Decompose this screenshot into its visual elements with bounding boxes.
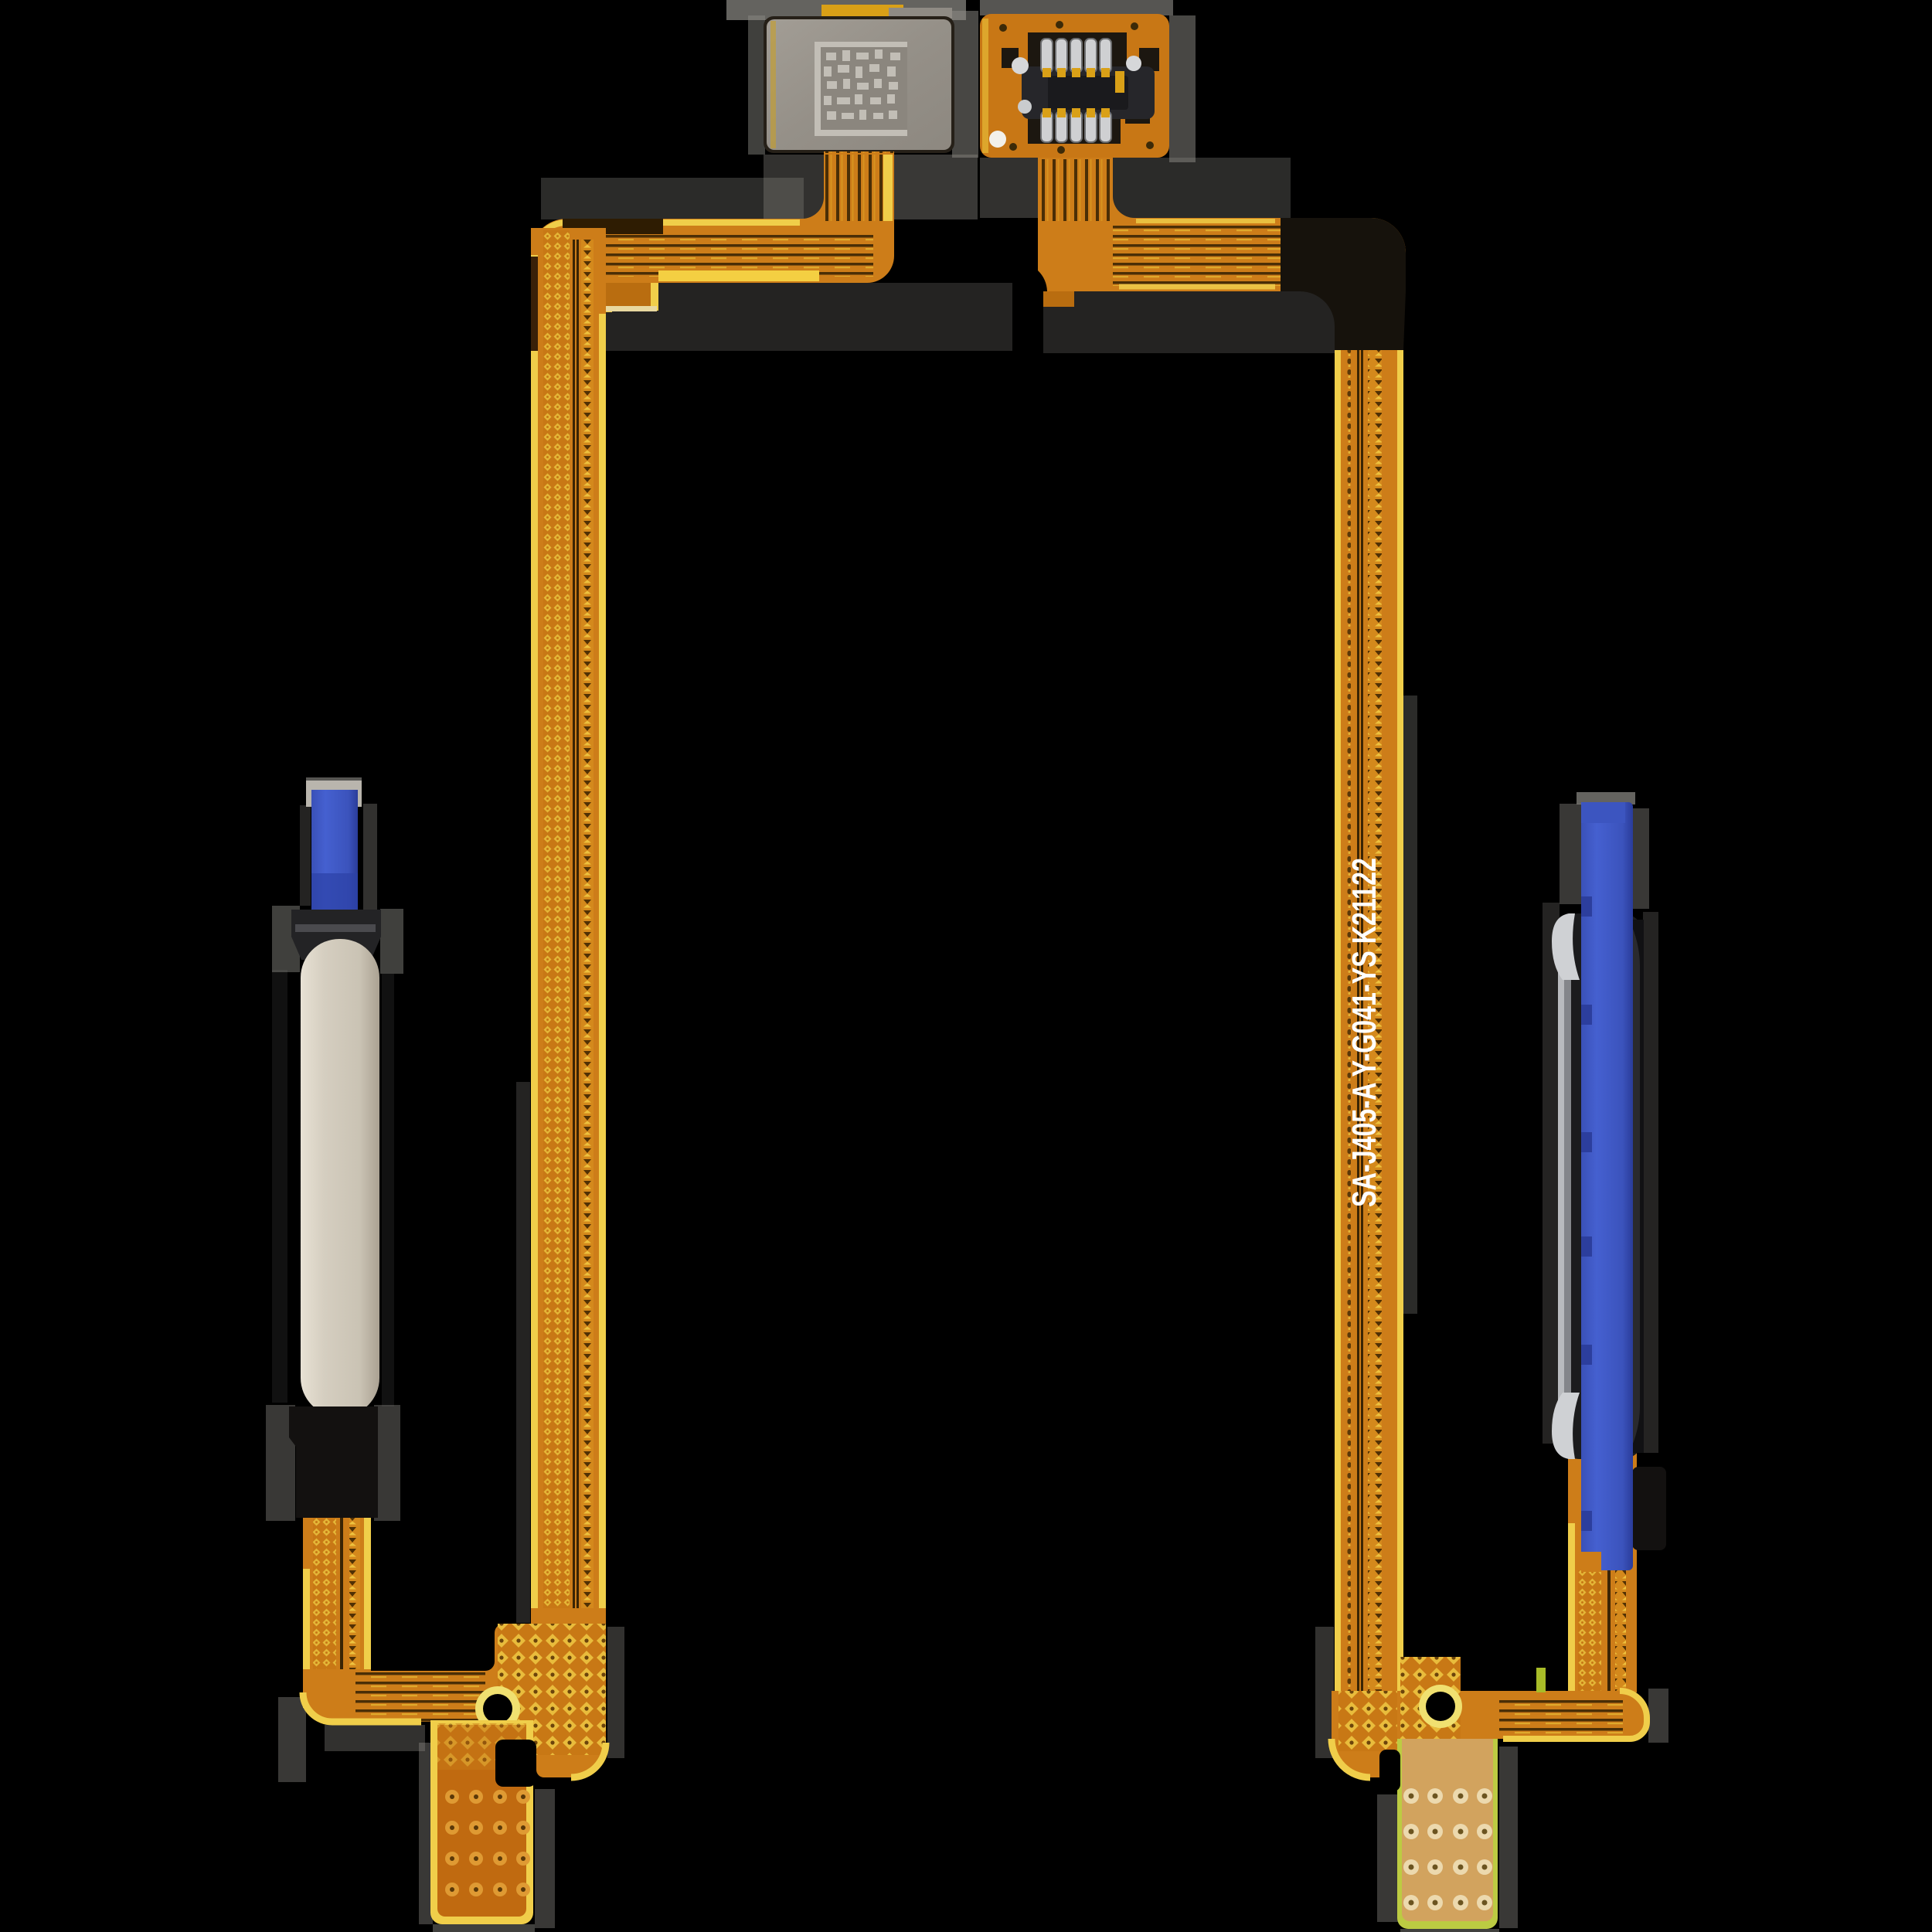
svg-text:SA-J405-A Y-G041-YS K21122: SA-J405-A Y-G041-YS K21122 — [1345, 858, 1383, 1207]
